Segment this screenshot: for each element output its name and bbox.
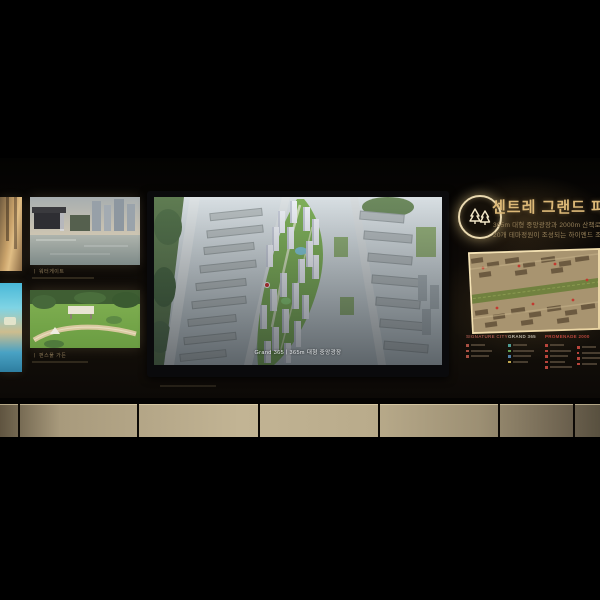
- legend-item: [508, 361, 542, 364]
- aerial-complex-render: [154, 197, 442, 365]
- legend-item: [508, 350, 542, 353]
- panel-title: 센트레 그랜드 파크: [492, 196, 600, 217]
- cabinet-divider: [378, 404, 380, 437]
- twin-trees-icon: [467, 204, 493, 230]
- screen-caption: Grand 365ㅣ365m 대형 중앙광장: [154, 348, 442, 356]
- legend-column-promenade: PROMENADE 2000: [545, 334, 573, 372]
- cabinet-band: [0, 404, 600, 437]
- panel-subtitle-2: 20개 테마정원이 조성되는 하이엔드 조경: [493, 229, 600, 239]
- lightbox-park: [30, 290, 140, 348]
- legend-item: [545, 366, 573, 369]
- site-plan-map: [463, 250, 598, 332]
- cabinet-divider: [18, 404, 20, 437]
- lightbox-water-pavilion: [30, 197, 140, 265]
- legend-items: [577, 346, 600, 365]
- legend-column-signature: SIGNATURE CITY: [466, 334, 506, 361]
- water-pavilion-render: [30, 197, 140, 265]
- legend-item: [577, 357, 600, 360]
- legend-item: [545, 350, 573, 353]
- legend-item: [577, 346, 600, 349]
- legend-items: [545, 344, 573, 369]
- legend-item: [577, 352, 600, 355]
- lightbox-waterpark-render: [0, 283, 22, 372]
- legend-item: [508, 355, 542, 358]
- tv-screen: Grand 365ㅣ365m 대형 중앙광장: [154, 197, 442, 365]
- legend-header: SIGNATURE CITY: [466, 334, 506, 339]
- legend-column-grand365: GRAND 365: [508, 334, 542, 366]
- cabinet-divider: [498, 404, 500, 437]
- caption-water-pavilion: ㅣ 워터게이트: [32, 268, 65, 275]
- lightbox-street-render: [0, 197, 22, 271]
- floor-shadow: [0, 437, 600, 600]
- legend-item: [577, 363, 600, 366]
- legend-item: [466, 350, 506, 353]
- legend-item: [545, 361, 573, 364]
- legend-item: [545, 344, 573, 347]
- cabinet-divider: [137, 404, 139, 437]
- legend-items: [466, 344, 506, 358]
- cabinet-divider: [258, 404, 260, 437]
- legend-items: [508, 344, 542, 363]
- wall-label-under-tv: [160, 385, 216, 387]
- tv-display: Grand 365ㅣ365m 대형 중앙광장: [147, 191, 449, 377]
- caption-park: ㅣ 펀스풀 가든: [32, 352, 66, 359]
- caption-subline: [32, 361, 88, 363]
- site-plan-panel: [461, 248, 600, 334]
- legend-header: PROMENADE 2000: [545, 334, 573, 339]
- park-render: [30, 290, 140, 348]
- legend-item: [466, 355, 506, 358]
- caption-subline: [32, 277, 94, 279]
- legend-column-promenade-2: [577, 341, 600, 368]
- legend-item: [545, 355, 573, 358]
- legend-header: GRAND 365: [508, 334, 542, 339]
- cabinet-divider: [573, 404, 575, 437]
- legend-item: [466, 344, 506, 347]
- showroom-photo: ㅣ 워터게이트 ㅣ 펀스풀 가든: [0, 0, 600, 600]
- legend-item: [508, 344, 542, 347]
- panel-subtitle-1: 365m 대형 중앙광장과 2000m 산책로: [493, 219, 600, 229]
